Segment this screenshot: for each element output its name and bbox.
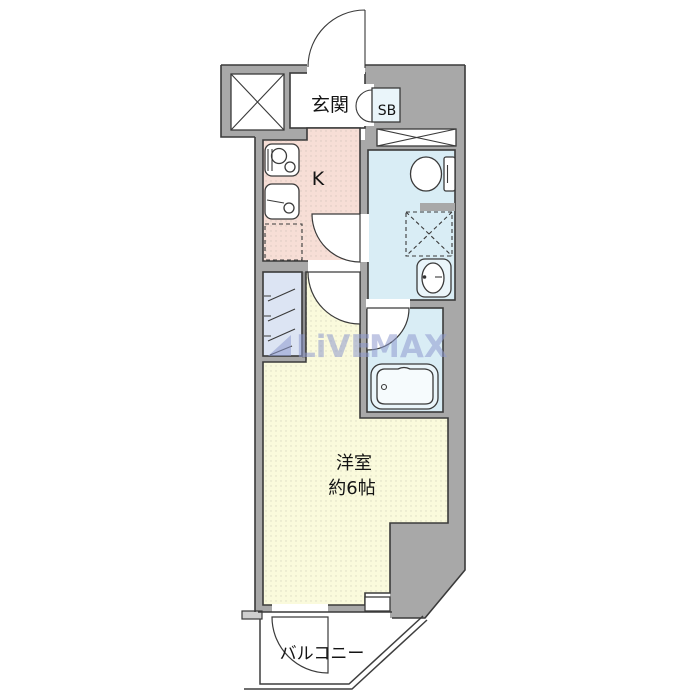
balcony-label: バルコニー	[280, 644, 365, 664]
washbasin-icon	[417, 259, 451, 297]
entrance-door-arc-icon	[308, 10, 365, 68]
wall-right-washroom	[455, 142, 465, 302]
vent-strip-icon	[377, 129, 456, 146]
wall-toilet-stub	[420, 203, 455, 211]
watermark-brand-2: MAX	[369, 329, 448, 365]
shoebox-label: SB	[378, 103, 397, 119]
room-size-label: 約6帖	[328, 478, 375, 499]
shaft-x-icon	[231, 74, 284, 130]
bathtub-icon	[371, 364, 438, 409]
floorplan-svg: LiVE MAX 玄関 SB K 洋室 約6帖 バルコニー	[0, 0, 700, 700]
floorplan-image: LiVE MAX 玄関 SB K 洋室 約6帖 バルコニー	[0, 0, 700, 700]
corner-notch	[365, 597, 390, 611]
stove-icon	[265, 144, 299, 176]
watermark-brand-1: LiVE	[296, 329, 372, 365]
toilet-icon	[411, 157, 456, 191]
wall-corner-chunk	[390, 523, 465, 618]
room-label: 洋室	[336, 453, 372, 474]
entrance-door-opening	[307, 63, 365, 74]
wall-left	[255, 130, 263, 612]
entrance-label: 玄関	[311, 94, 349, 116]
kitchen-label: K	[312, 168, 325, 190]
wall-right-room	[448, 418, 465, 525]
sink-icon	[265, 184, 299, 219]
